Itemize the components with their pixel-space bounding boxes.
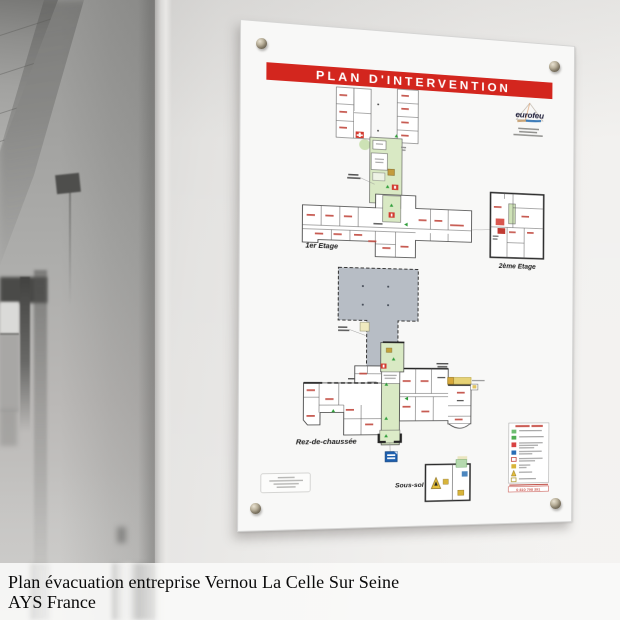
svg-text:2ème Etage: 2ème Etage	[498, 262, 536, 271]
svg-text:1er Etage: 1er Etage	[305, 241, 338, 250]
svg-text:0 810 798 391: 0 810 798 391	[516, 487, 541, 492]
svg-text:eurofeu: eurofeu	[515, 110, 544, 121]
svg-text:Sous-sol: Sous-sol	[395, 481, 425, 490]
svg-text:Rez-de-chaussée: Rez-de-chaussée	[296, 437, 357, 446]
